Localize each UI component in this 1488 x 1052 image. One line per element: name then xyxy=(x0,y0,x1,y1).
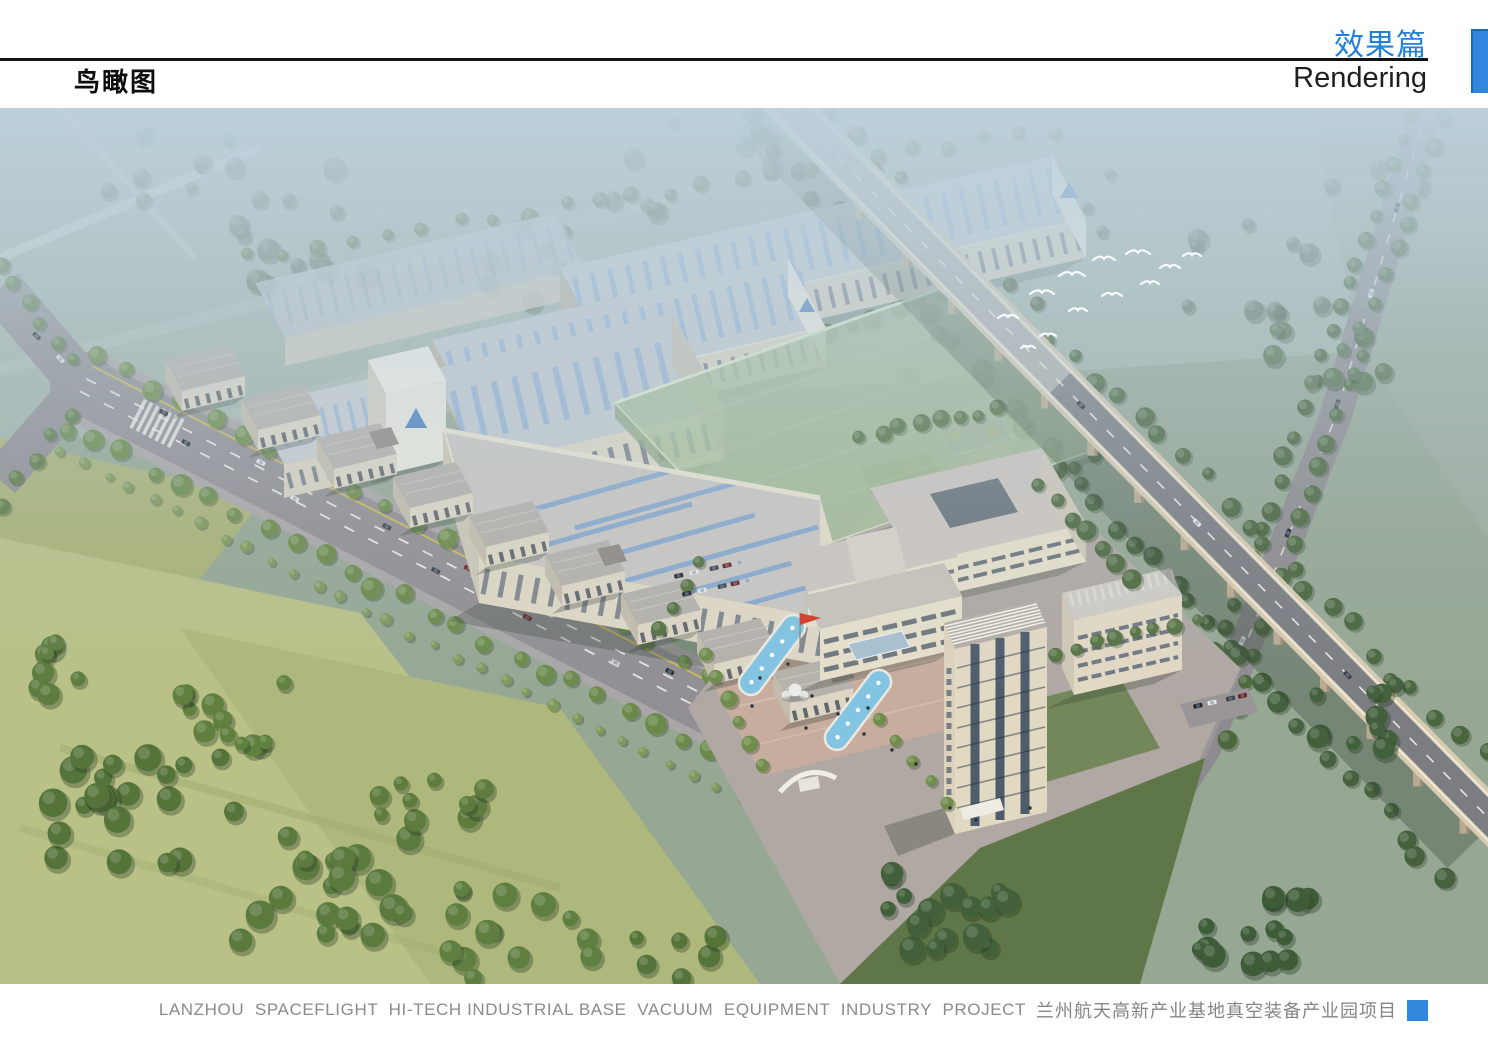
section-title-en: Rendering xyxy=(1293,62,1427,95)
project-name-en: LANZHOU SPACEFLIGHT HI-TECH INDUSTRIAL B… xyxy=(159,1000,1026,1020)
section-tab-marker xyxy=(1471,29,1488,93)
album-page: 鸟瞰图 效果篇 Rendering xyxy=(0,0,1488,1052)
project-name-zh: 兰州航天高新产业基地真空装备产业园项目 xyxy=(1036,997,1397,1023)
aerial-rendering-image xyxy=(0,108,1488,984)
header-divider xyxy=(0,58,1428,61)
footer-caption: LANZHOU SPACEFLIGHT HI-TECH INDUSTRIAL B… xyxy=(159,997,1428,1023)
page-title: 鸟瞰图 xyxy=(74,62,158,99)
caption-blue-square xyxy=(1407,1000,1428,1021)
aerial-rendering-svg xyxy=(0,108,1488,984)
section-title-zh: 效果篇 xyxy=(1334,20,1427,64)
atmospheric-haze xyxy=(0,108,1488,984)
